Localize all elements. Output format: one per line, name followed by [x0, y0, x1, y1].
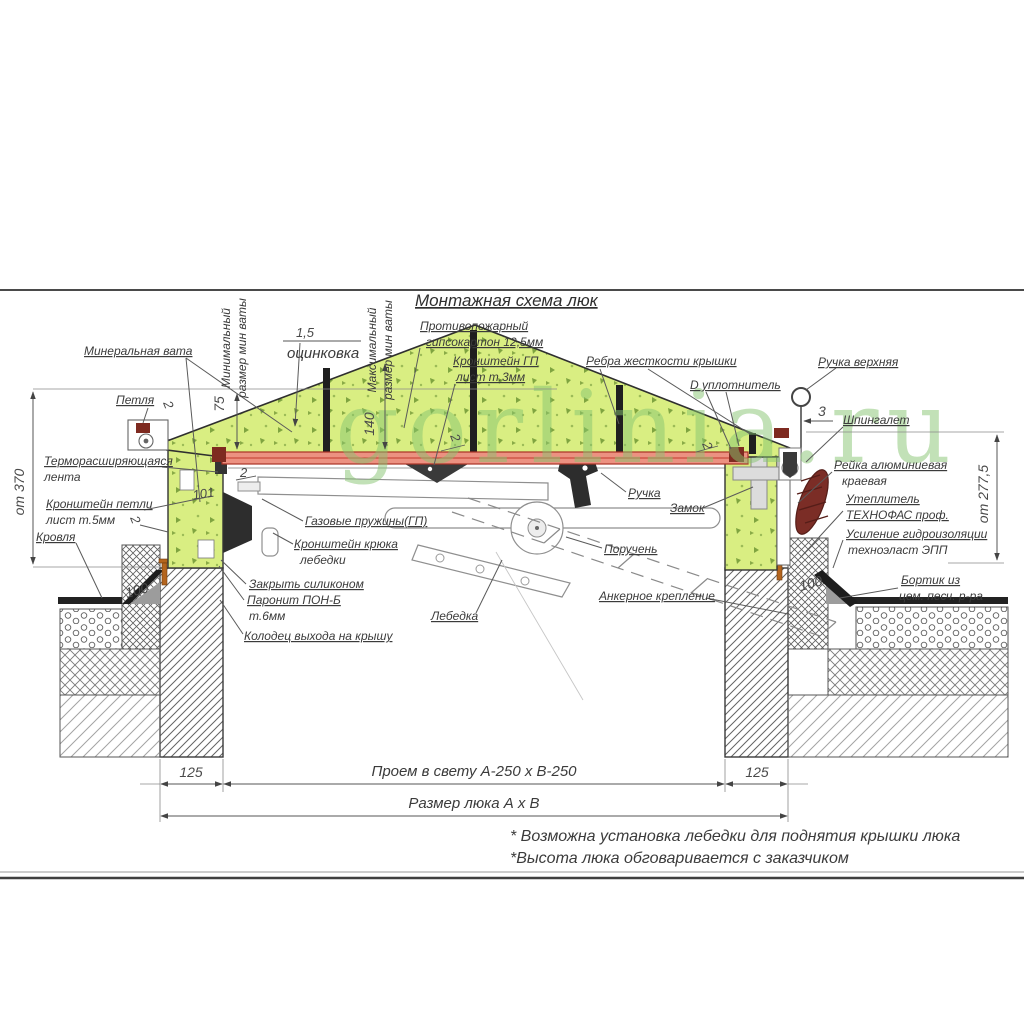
label-handle: Ручка — [628, 486, 661, 500]
left-shaft-wall — [160, 568, 223, 757]
dim-hatch-size: Размер люка А х В — [408, 795, 539, 812]
label-lock: Замок — [670, 501, 706, 515]
dim-101: 101 — [192, 485, 216, 503]
label-hinge-bracket-line1: Кронштейн петли — [46, 497, 153, 511]
dim-3: 3 — [818, 403, 826, 419]
dim-125-left: 125 — [179, 764, 203, 780]
hinge-seal — [136, 423, 150, 433]
dim-opening: Проем в свету А-250 х В-250 — [371, 763, 577, 780]
label-paronite-line1: Паронит ПОН-Б — [247, 593, 341, 607]
label-zinc: оцинковка — [287, 345, 359, 362]
label-min-wool-line2: размер мин ваты — [235, 298, 249, 399]
note-height: *Высота люка обговаривается с заказчиком — [510, 850, 849, 867]
label-anchor: Анкерное крепление — [598, 589, 715, 603]
left-slab — [60, 695, 160, 757]
label-bracket-gp-line1: Кронштейн ГП — [453, 354, 539, 368]
label-bracket-gp-line2: лист т.3мм — [455, 370, 525, 384]
label-curb-line1: Бортик из — [901, 573, 961, 587]
label-zinc-thickness: 1,5 — [296, 325, 315, 340]
label-hinge-bracket-line2: лист т.5мм — [45, 513, 115, 527]
label-fireproof-line2: гипсокартон 12,5мм — [426, 335, 543, 349]
label-max-wool-line2: размер мин ваты — [381, 300, 395, 401]
label-fireproof-line1: Противопожарный — [420, 319, 528, 333]
label-min-wool-line1: Минимальный — [219, 308, 233, 388]
label-latch: Шпингалет — [843, 413, 910, 427]
dim-277: от 277,5 — [975, 465, 991, 524]
label-rail-line2: краевая — [842, 474, 887, 488]
label-handle-top: Ручка верхняя — [818, 355, 899, 369]
label-ribs: Ребра жесткости крышки — [586, 354, 737, 368]
dim-370: от 370 — [11, 468, 27, 515]
left-screed-layer — [60, 649, 160, 695]
label-rail-line1: Рейка алюминиевая — [834, 458, 948, 472]
hinge-detail — [128, 420, 168, 450]
dim-2b: 2 — [239, 465, 248, 480]
label-gas-springs: Газовые пружины(ГП) — [305, 514, 427, 528]
left-membrane — [58, 597, 122, 604]
dim-140: 140 — [361, 412, 377, 436]
winch-hook-bracket — [262, 528, 278, 556]
label-insulation-line1: Утеплитель — [845, 492, 920, 506]
label-thermal-tape-line1: Терморасширяющаяся — [44, 454, 173, 468]
label-waterproof-line1: Усиление гидроизоляции — [845, 527, 988, 541]
label-mineral-wool: Минеральная вата — [84, 344, 193, 358]
dim-75: 75 — [211, 396, 227, 412]
lid-rib — [323, 368, 330, 454]
label-paronite-line2: т.6мм — [249, 609, 285, 623]
drawing-title: Монтажная схема люк — [415, 291, 599, 310]
label-waterproof-line2: техноэласт ЭПП — [848, 543, 948, 557]
right-insulation-column — [788, 538, 828, 649]
right-gravel-layer — [856, 607, 1008, 649]
label-winch-hook-line1: Кронштейн крюка — [294, 537, 398, 551]
label-shaft: Колодец выхода на крышу — [244, 629, 393, 643]
note-winch: * Возможна установка лебедки для подняти… — [510, 828, 960, 845]
technical-drawing-page: gorlinia.ru — [0, 0, 1024, 1024]
label-roof: Кровля — [36, 530, 76, 544]
pulley-axle — [535, 526, 539, 530]
label-curb-line2: цем. песч. р-ра — [899, 589, 983, 603]
label-silicone: Закрыть силиконом — [249, 577, 364, 591]
hatch-installation-scheme: gorlinia.ru — [0, 0, 1024, 1024]
label-thermal-tape-line2: лента — [43, 470, 81, 484]
right-slab — [788, 695, 1008, 757]
left-anchor-pin — [162, 563, 167, 585]
label-insulation-line2: ТЕХНОФАС проф. — [846, 508, 949, 522]
label-winch: Лебедка — [430, 609, 478, 623]
label-seal-d: D уплотнитель — [690, 378, 781, 392]
label-winch-hook-line2: лебедки — [299, 553, 346, 567]
hinge-pin-center — [144, 439, 149, 444]
label-hinge: Петля — [116, 393, 155, 407]
label-max-wool-line1: Максимальный — [365, 307, 379, 392]
label-handrail: Поручень — [604, 542, 657, 556]
dim-125-right: 125 — [745, 764, 769, 780]
right-shaft-wall — [725, 568, 788, 757]
left-gravel-layer — [60, 609, 122, 649]
frame-cutout — [198, 540, 214, 558]
gas-spring-piston — [238, 482, 260, 491]
right-screed-layer — [828, 649, 1008, 695]
left-seal-block — [212, 447, 226, 462]
